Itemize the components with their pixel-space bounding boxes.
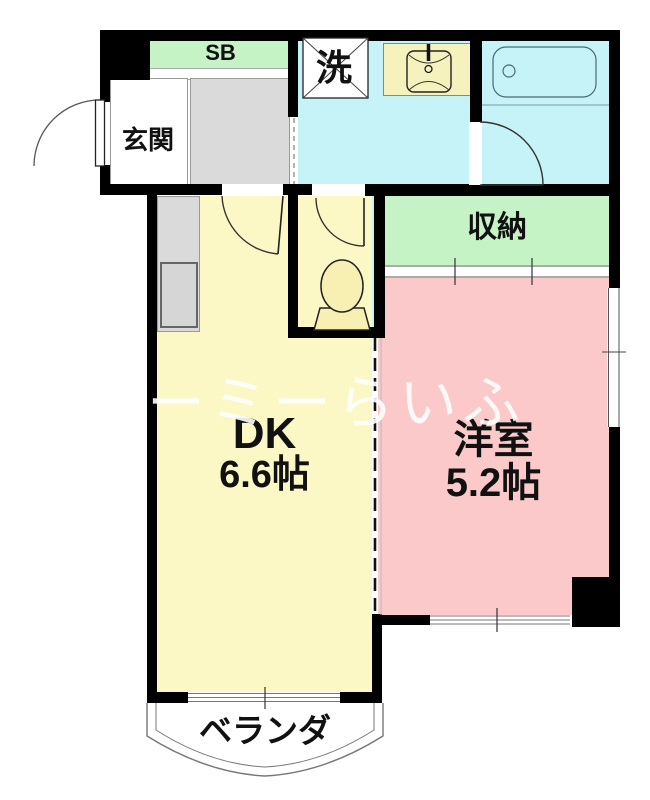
wall-segment	[100, 30, 150, 80]
watermark-text: ユーミーらいふ	[84, 356, 525, 440]
storage-sliding-door	[385, 265, 609, 278]
wall-segment	[365, 184, 620, 196]
wall-segment	[100, 78, 110, 103]
entrance-label: 玄関	[110, 127, 186, 153]
dk-door-opening	[222, 184, 283, 196]
shoe-box-label: SB	[148, 42, 293, 64]
wall-segment	[470, 37, 482, 122]
dk-balcony-window	[188, 692, 340, 703]
storage-label: 収納	[385, 213, 609, 243]
wall-segment	[609, 37, 620, 288]
dk-size-label: 6.6帖	[157, 456, 372, 494]
wall-segment	[572, 577, 620, 627]
western-room-side-window	[607, 288, 621, 427]
kitchen-sink	[160, 262, 198, 328]
bathroom-door-opening	[469, 122, 482, 185]
bathroom-area	[482, 41, 609, 186]
wall-segment	[288, 193, 298, 338]
entrance-door-arc	[34, 100, 100, 166]
veranda-label: ベランダ	[147, 714, 383, 747]
wall-segment	[374, 193, 385, 338]
wall-segment	[100, 184, 222, 195]
toilet-door-opening	[312, 184, 365, 196]
wall-segment	[100, 30, 620, 41]
western-room-size-label: 5.2帖	[378, 463, 609, 503]
entry-door-opening	[100, 102, 110, 165]
laundry-label: 洗	[300, 50, 368, 86]
wall-segment	[288, 327, 385, 338]
wall-segment	[609, 427, 620, 579]
wall-segment	[147, 193, 157, 703]
entrance-floor-area	[190, 78, 290, 186]
wall-segment	[372, 614, 382, 703]
vanity-counter	[383, 43, 474, 96]
western-room-bottom-window	[430, 615, 570, 625]
wall-segment	[340, 692, 382, 703]
floor-plan: SB 玄関 洗 収納 DK 6.6帖 洋室 5.2帖 ベランダ ユーミーらいふ	[0, 0, 650, 800]
